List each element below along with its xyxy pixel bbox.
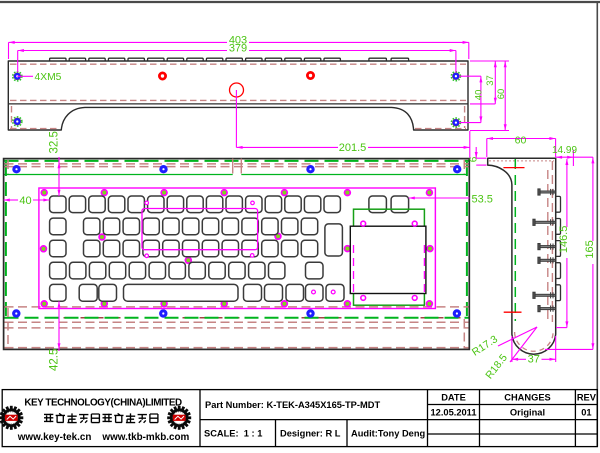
- svg-text:40: 40: [474, 90, 485, 101]
- svg-text:6: 6: [469, 156, 480, 162]
- svg-text:201.5: 201.5: [339, 142, 367, 154]
- svg-text:Part Number: K-TEK-A345X165-TP: Part Number: K-TEK-A345X165-TP-MDT: [205, 400, 380, 410]
- svg-text:CHANGES: CHANGES: [504, 393, 551, 403]
- svg-text:01: 01: [581, 408, 591, 418]
- svg-text:60: 60: [515, 135, 527, 147]
- svg-text:60: 60: [496, 89, 507, 100]
- svg-text:40: 40: [19, 195, 31, 207]
- svg-text:53.5: 53.5: [472, 194, 493, 206]
- svg-text:146.5: 146.5: [558, 226, 570, 254]
- svg-text:379: 379: [229, 43, 247, 55]
- svg-text:REV: REV: [577, 393, 597, 403]
- svg-text:165: 165: [584, 240, 596, 258]
- svg-text:SCALE: 1 : 1: SCALE: 1 : 1: [204, 429, 262, 439]
- svg-text:12.05.2011: 12.05.2011: [430, 408, 476, 418]
- svg-text:Original: Original: [510, 408, 545, 418]
- svg-text:4XM5: 4XM5: [35, 72, 62, 83]
- svg-text:www.key-tek.cn www.tkb-mkb.: www.key-tek.cn www.tkb-mkb.com: [17, 432, 190, 443]
- svg-text:DATE: DATE: [441, 393, 466, 403]
- svg-text:37: 37: [485, 75, 496, 86]
- svg-text:14.99: 14.99: [552, 145, 577, 156]
- svg-text:R17.3: R17.3: [470, 333, 500, 358]
- svg-text:Audit:Tony Deng: Audit:Tony Deng: [351, 429, 426, 439]
- svg-text:R18.5: R18.5: [483, 352, 510, 382]
- svg-text:KEY TECHNOLOGY(CHINA)LIMITED: KEY TECHNOLOGY(CHINA)LIMITED: [24, 398, 182, 409]
- svg-text:42.5: 42.5: [48, 349, 60, 371]
- svg-text:32.5: 32.5: [48, 131, 60, 153]
- svg-text:Designer: R L: Designer: R L: [280, 429, 341, 439]
- svg-text:37: 37: [528, 354, 540, 366]
